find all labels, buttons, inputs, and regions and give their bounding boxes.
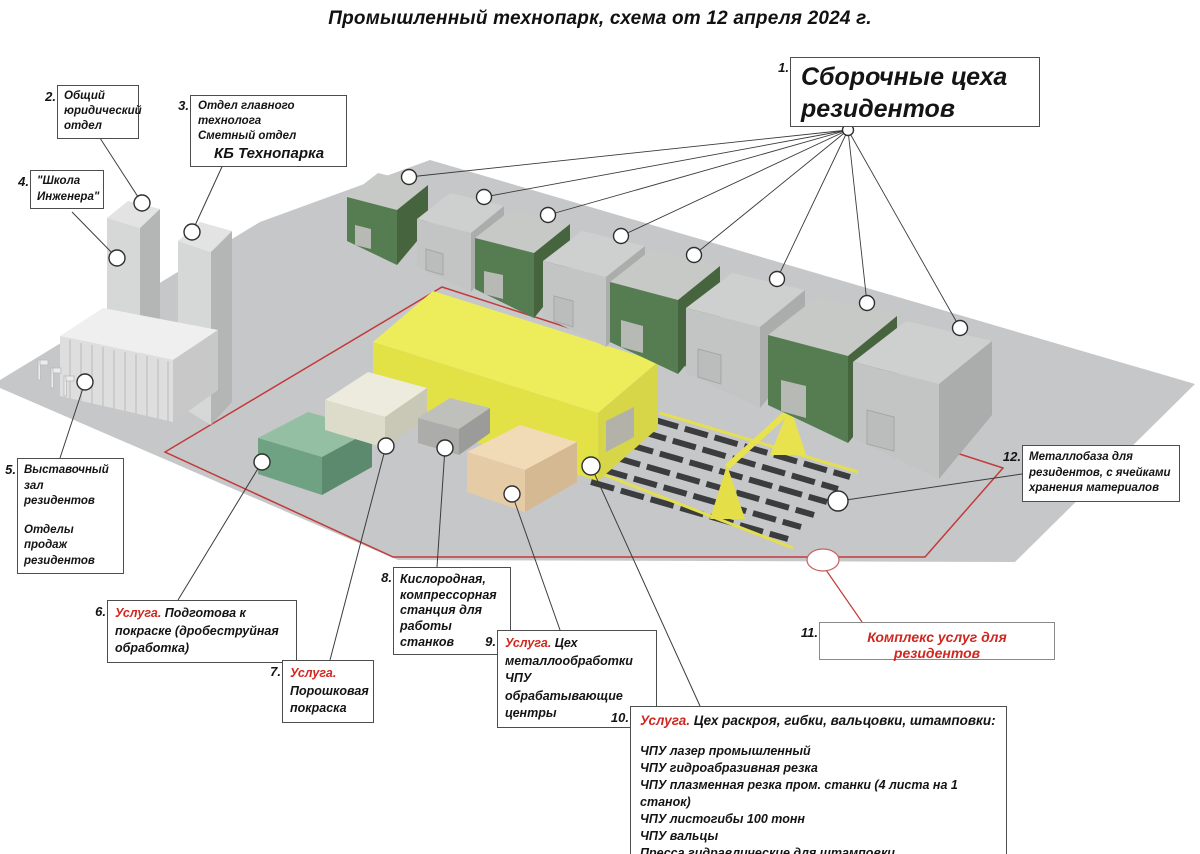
technopark-scheme-page: Промышленный технопарк, схема от 12 апре… <box>0 0 1200 854</box>
callout-text: КБ Технопарка <box>198 144 339 164</box>
callout-text: резидентов <box>24 555 95 567</box>
callout-number: 8. <box>368 570 392 586</box>
callout-text: Цех раскроя, гибки, вальцовки, штамповки… <box>690 713 996 728</box>
callout-text: резидентов <box>24 495 95 507</box>
callout-cutting-bending: 10. Услуга. Цех раскроя, гибки, вальцовк… <box>630 706 1007 854</box>
callout11-red-line <box>826 570 862 622</box>
callout-text: Инженера" <box>37 191 99 203</box>
callout-number: 5. <box>0 461 16 479</box>
callout-number: 4. <box>5 173 29 191</box>
callout-chief-technologist: 3. Отдел главного технолога Сметный отде… <box>190 95 347 167</box>
callout-number: 2. <box>32 88 56 105</box>
callout-services-complex: 11. Комплекс услуг для резидентов <box>819 622 1055 660</box>
equipment-item: ЧПУ плазменная резка пром. станки (4 лис… <box>640 777 997 811</box>
callout-text: Комплекс услуг для резидентов <box>867 629 1006 661</box>
service-prefix: Услуга. <box>505 636 551 650</box>
service-prefix: Услуга. <box>115 606 161 620</box>
service-prefix: Услуга. <box>290 666 336 680</box>
callout-text: Отделы продаж <box>24 524 74 552</box>
callout-legal-department: 2. Общий юридический отдел <box>57 85 139 139</box>
callout-assembly-shops: 1. Сборочные цеха резидентов <box>790 57 1040 127</box>
callout-text: Сборочные цеха <box>801 63 1007 91</box>
equipment-item: ЧПУ листогибы 100 тонн <box>640 811 997 828</box>
callout-number: 6. <box>82 603 106 621</box>
callout-text: "Школа <box>37 175 80 187</box>
callout-shot-blasting: 6. Услуга. Подготова к покраске (дробест… <box>107 600 297 663</box>
callout-text: Сметный отдел <box>198 130 296 142</box>
callout-text: резидентов <box>801 95 955 123</box>
callout-number: 11. <box>794 625 818 640</box>
callout-text: Металлобаза для резидентов, с ячейками х… <box>1029 451 1171 494</box>
page-title: Промышленный технопарк, схема от 12 апре… <box>0 8 1200 30</box>
callout-text: Выставочный зал <box>24 464 109 492</box>
equipment-item: ЧПУ лазер промышленный <box>640 743 997 760</box>
callout-engineer-school: 4. "Школа Инженера" <box>30 170 104 209</box>
callout-number: 1. <box>765 60 789 77</box>
callout-exhibition-hall: 5. Выставочный зал резидентов Отделы про… <box>17 458 124 574</box>
callout-number: 7. <box>257 663 281 681</box>
callout-number: 12. <box>997 448 1021 466</box>
callout-number: 3. <box>165 98 189 115</box>
callout-powder-coating: 7. Услуга. Порошковая покраска <box>282 660 374 723</box>
callout-text: Отдел главного технолога <box>198 100 295 127</box>
callout-number: 10. <box>605 709 629 727</box>
callout-text: Порошковая покраска <box>290 684 369 716</box>
callout-metal-warehouse: 12. Металлобаза для резидентов, с ячейка… <box>1022 445 1180 502</box>
callout-header: Услуга. Цех раскроя, гибки, вальцовки, ш… <box>640 712 997 730</box>
zone-anchor-ellipse <box>807 549 839 571</box>
callout-text: Общий юридический отдел <box>64 90 142 132</box>
equipment-item: ЧПУ вальцы <box>640 828 997 845</box>
service-prefix: Услуга. <box>640 713 690 728</box>
equipment-item: ЧПУ гидроабразивная резка <box>640 760 997 777</box>
callout-number: 9. <box>472 633 496 651</box>
equipment-item: Пресса гидравлические для штамповки <box>640 845 997 854</box>
